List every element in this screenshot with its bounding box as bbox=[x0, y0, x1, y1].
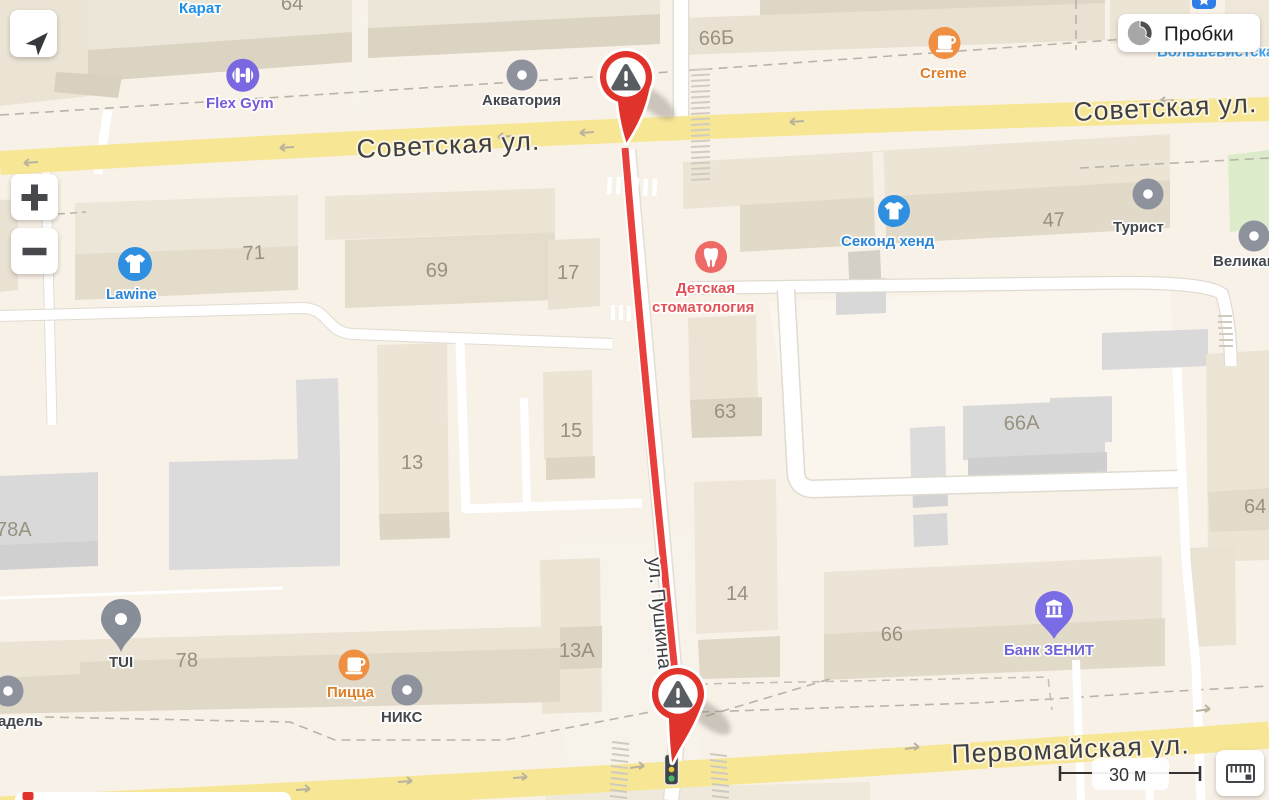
svg-text:Creme: Creme bbox=[920, 65, 967, 82]
svg-text:78А: 78А bbox=[0, 519, 32, 541]
svg-text:69: 69 bbox=[425, 259, 448, 282]
svg-text:78: 78 bbox=[175, 649, 198, 672]
svg-text:TUI: TUI bbox=[109, 654, 133, 671]
svg-text:47: 47 bbox=[1042, 209, 1065, 232]
svg-text:30 м: 30 м bbox=[1109, 765, 1146, 785]
svg-text:13А: 13А bbox=[559, 640, 595, 662]
svg-text:Великан: Великан bbox=[1213, 253, 1269, 270]
svg-text:14: 14 bbox=[726, 583, 748, 605]
svg-text:Секонд хенд: Секонд хенд bbox=[841, 233, 935, 250]
svg-text:Детская: Детская bbox=[676, 280, 735, 297]
svg-text:66: 66 bbox=[880, 623, 903, 646]
svg-text:адель: адель bbox=[0, 713, 43, 730]
svg-text:63: 63 bbox=[714, 401, 736, 423]
svg-text:НИКС: НИКС bbox=[381, 709, 423, 726]
svg-text:Турист: Турист bbox=[1113, 219, 1164, 236]
svg-text:Банк ЗЕНИТ: Банк ЗЕНИТ bbox=[1004, 642, 1094, 659]
svg-text:15: 15 bbox=[560, 420, 582, 442]
svg-text:71: 71 bbox=[242, 242, 265, 265]
svg-text:13: 13 bbox=[401, 452, 423, 474]
svg-text:Пробки: Пробки bbox=[1164, 23, 1234, 46]
svg-text:стоматология: стоматология bbox=[652, 299, 754, 316]
svg-text:Lawine: Lawine bbox=[106, 286, 157, 303]
svg-text:66Б: 66Б bbox=[698, 27, 734, 50]
svg-text:Акватория: Акватория bbox=[482, 92, 561, 109]
svg-text:17: 17 bbox=[557, 262, 579, 284]
svg-text:Пицца: Пицца bbox=[327, 684, 375, 701]
svg-text:64: 64 bbox=[281, 0, 303, 15]
svg-text:Карат: Карат bbox=[179, 0, 222, 17]
svg-text:64: 64 bbox=[1244, 496, 1266, 518]
svg-text:66А: 66А bbox=[1003, 412, 1040, 435]
svg-text:Flex Gym: Flex Gym bbox=[206, 95, 274, 112]
